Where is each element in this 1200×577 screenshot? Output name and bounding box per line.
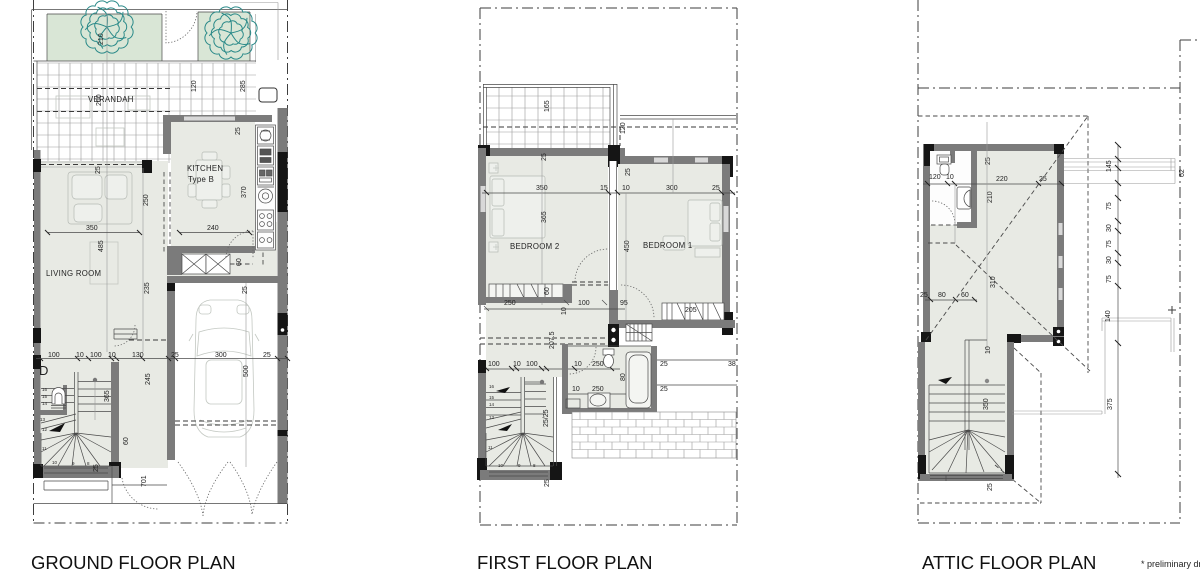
svg-text:10: 10 (622, 185, 630, 192)
svg-text:210: 210 (987, 191, 994, 203)
svg-text:25: 25 (544, 479, 551, 487)
svg-text:ATTIC FLOOR PLAN: ATTIC FLOOR PLAN (922, 552, 1096, 573)
svg-text:100: 100 (526, 361, 538, 368)
svg-text:D: D (39, 363, 48, 378)
svg-text:10: 10 (52, 460, 58, 465)
svg-text:15: 15 (42, 394, 48, 399)
svg-text:240: 240 (207, 225, 219, 232)
svg-text:75: 75 (1106, 240, 1113, 248)
svg-text:145: 145 (1106, 160, 1113, 172)
svg-text:365: 365 (104, 390, 111, 402)
svg-text:25: 25 (660, 386, 668, 393)
svg-text:25: 25 (171, 352, 179, 359)
svg-text:485: 485 (98, 240, 105, 252)
svg-text:220: 220 (996, 176, 1008, 183)
svg-text:* preliminary drawing: * preliminary drawing (1141, 559, 1200, 569)
svg-text:100: 100 (90, 352, 102, 359)
svg-text:285: 285 (240, 80, 247, 92)
svg-text:Type B: Type B (188, 175, 214, 184)
svg-text:210: 210 (98, 33, 105, 45)
svg-text:250: 250 (504, 300, 516, 307)
svg-text:260: 260 (96, 94, 103, 106)
svg-text:300: 300 (666, 185, 678, 192)
svg-text:15: 15 (600, 185, 608, 192)
svg-text:11: 11 (42, 446, 47, 451)
svg-text:KITCHEN: KITCHEN (187, 164, 223, 173)
svg-text:13: 13 (40, 417, 46, 422)
svg-text:75: 75 (1106, 275, 1113, 283)
svg-text:10: 10 (76, 352, 84, 359)
svg-text:205: 205 (685, 307, 697, 314)
svg-text:100: 100 (48, 352, 60, 359)
svg-text:80: 80 (620, 373, 627, 381)
svg-text:25: 25 (242, 286, 249, 294)
svg-text:120: 120 (620, 122, 627, 134)
svg-text:25: 25 (920, 292, 928, 299)
svg-text:60: 60 (236, 258, 243, 266)
svg-text:12: 12 (42, 427, 48, 432)
svg-text:370: 370 (241, 186, 248, 198)
svg-text:100: 100 (488, 361, 500, 368)
svg-text:450: 450 (624, 240, 631, 252)
svg-text:95: 95 (620, 300, 628, 307)
svg-text:350: 350 (983, 398, 990, 410)
svg-text:245: 245 (145, 373, 152, 385)
svg-text:140: 140 (1105, 310, 1112, 322)
svg-text:25: 25 (660, 361, 668, 368)
svg-text:16: 16 (42, 387, 48, 392)
svg-text:25: 25 (93, 464, 100, 472)
svg-text:250: 250 (592, 361, 604, 368)
svg-text:100: 100 (578, 300, 590, 307)
svg-text:80: 80 (938, 292, 946, 299)
svg-text:25: 25 (95, 166, 102, 174)
svg-text:375: 375 (1107, 398, 1114, 410)
svg-text:25: 25 (263, 352, 271, 359)
svg-text:25: 25 (985, 157, 992, 165)
svg-text:25: 25 (712, 185, 720, 192)
svg-text:10: 10 (108, 352, 116, 359)
svg-text:14: 14 (42, 401, 48, 406)
svg-text:10: 10 (572, 386, 580, 393)
svg-text:14: 14 (489, 402, 495, 407)
svg-text:701: 701 (141, 475, 148, 487)
svg-text:310: 310 (990, 276, 997, 288)
svg-text:10: 10 (513, 361, 521, 368)
svg-text:500: 500 (243, 365, 250, 377)
svg-text:38: 38 (728, 361, 736, 368)
svg-text:25: 25 (625, 168, 632, 176)
svg-text:60: 60 (544, 287, 551, 295)
svg-text:25/25: 25/25 (543, 409, 550, 427)
svg-text:10: 10 (946, 174, 954, 181)
svg-text:120: 120 (191, 80, 198, 92)
svg-text:62: 62 (1179, 169, 1186, 177)
svg-text:120: 120 (929, 174, 941, 181)
svg-text:BEDROOM 2: BEDROOM 2 (510, 242, 560, 251)
svg-text:25: 25 (987, 483, 994, 491)
svg-text:15: 15 (489, 395, 495, 400)
svg-text:16: 16 (489, 384, 495, 389)
svg-text:300: 300 (215, 352, 227, 359)
svg-text:60: 60 (961, 292, 969, 299)
svg-text:LIVING ROOM: LIVING ROOM (46, 269, 101, 278)
svg-text:BEDROOM 1: BEDROOM 1 (643, 241, 693, 250)
svg-text:10: 10 (498, 463, 504, 468)
svg-text:10: 10 (574, 361, 582, 368)
svg-text:207.5: 207.5 (549, 331, 556, 349)
svg-text:165: 165 (544, 100, 551, 112)
svg-text:25: 25 (1039, 176, 1047, 183)
svg-text:10: 10 (561, 307, 568, 315)
svg-text:235: 235 (144, 282, 151, 294)
svg-text:11: 11 (488, 445, 493, 450)
svg-text:30: 30 (1106, 224, 1113, 232)
svg-text:250: 250 (592, 386, 604, 393)
svg-text:60: 60 (123, 437, 130, 445)
svg-text:350: 350 (86, 225, 98, 232)
svg-text:VERANDAH: VERANDAH (88, 95, 134, 104)
svg-text:75: 75 (1106, 202, 1113, 210)
svg-text:25: 25 (235, 127, 242, 135)
svg-text:FIRST FLOOR PLAN: FIRST FLOOR PLAN (477, 552, 652, 573)
svg-text:GROUND FLOOR PLAN: GROUND FLOOR PLAN (31, 552, 236, 573)
svg-text:130: 130 (132, 352, 144, 359)
svg-text:10: 10 (985, 346, 992, 354)
svg-text:13: 13 (489, 415, 495, 420)
svg-text:250: 250 (143, 194, 150, 206)
svg-text:30: 30 (1106, 256, 1113, 264)
